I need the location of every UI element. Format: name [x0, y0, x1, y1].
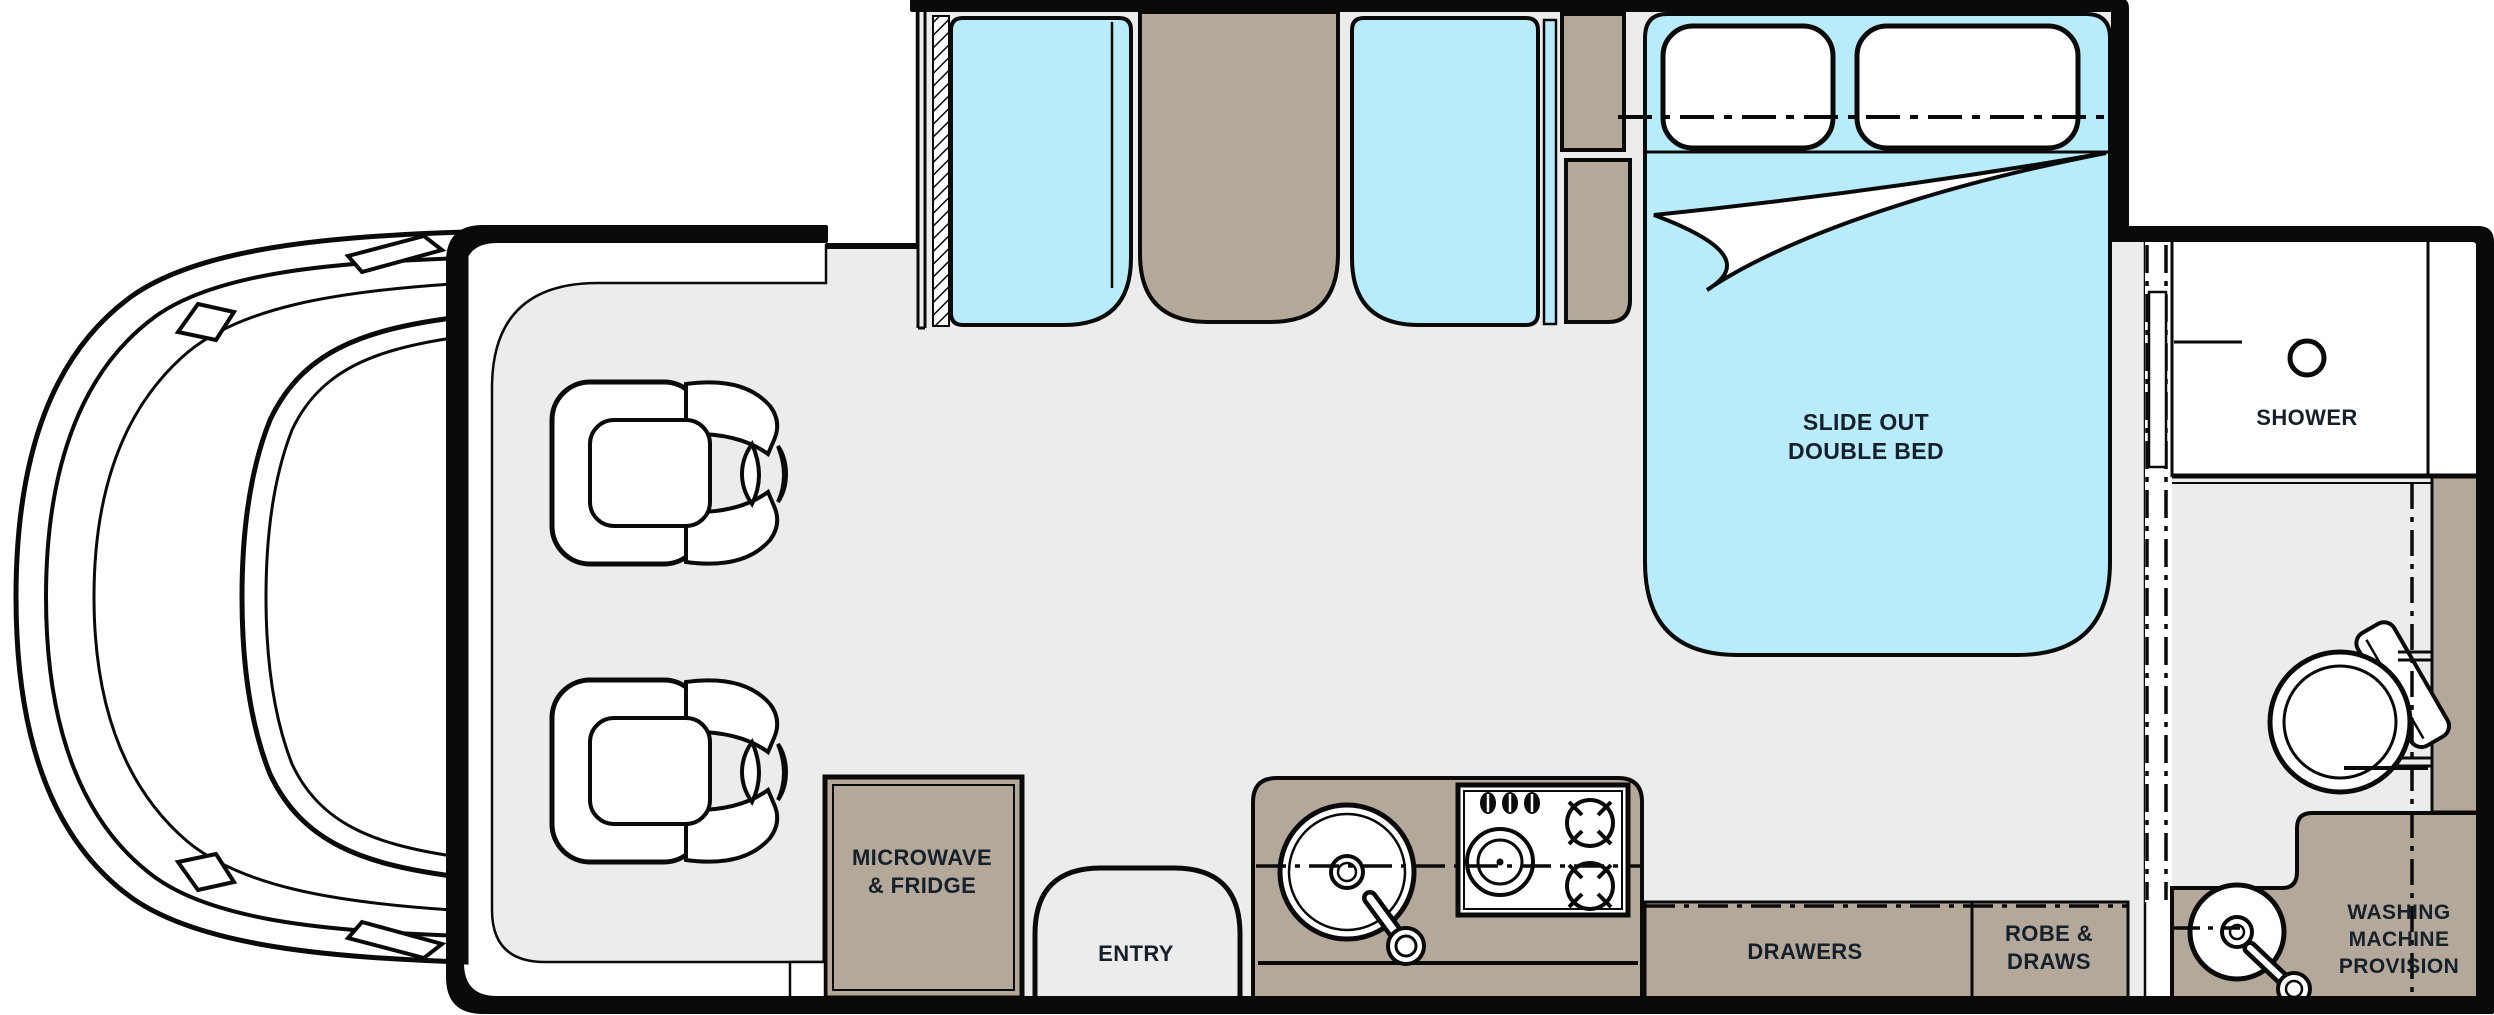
- partition-door: [2149, 292, 2166, 467]
- kitchen: [1253, 778, 1642, 1000]
- floorplan: SLIDE OUT DOUBLE BED SHOWER MICROWAVE & …: [0, 0, 2494, 1015]
- cab-front: [16, 232, 466, 962]
- pillow: [1857, 26, 2078, 148]
- slide-out-double-bed: [1618, 14, 2110, 655]
- window-hatch: [933, 16, 949, 326]
- swivel-chair-front: [552, 382, 786, 564]
- round-burner: [1467, 829, 1533, 895]
- dinette-table: [1140, 12, 1338, 322]
- shower-head-icon: [2290, 341, 2324, 375]
- seat-back-panel: [1544, 20, 1556, 324]
- entry-arch: [1035, 868, 1240, 1000]
- cooktop-knobs: [1480, 792, 1540, 814]
- label-microwave-fridge: MICROWAVE & FRIDGE: [822, 844, 1022, 900]
- label-shower: SHOWER: [2217, 404, 2397, 431]
- wardrobe-cabinet-lower: [1566, 160, 1630, 322]
- bathroom-cabinet: [2432, 477, 2478, 812]
- floorplan-drawing: [0, 0, 2494, 1015]
- label-slide-out-double-bed: SLIDE OUT DOUBLE BED: [1746, 408, 1986, 466]
- swivel-chair-rear: [552, 680, 786, 862]
- step-notch: [790, 962, 825, 1000]
- dinette-seat-left: [951, 18, 1131, 325]
- dinette-seat-right: [1352, 18, 1538, 325]
- label-robe-draws: ROBE & DRAWS: [1964, 920, 2134, 976]
- label-washing-machine: WASHING MACHINE PROVISION: [2294, 899, 2494, 980]
- pillow: [1663, 26, 1833, 148]
- label-drawers: DRAWERS: [1700, 938, 1910, 965]
- cooktop: [1458, 785, 1628, 915]
- label-entry: ENTRY: [1058, 940, 1214, 967]
- wardrobe-cabinet-upper: [1562, 14, 1624, 150]
- dinette: [933, 12, 1630, 326]
